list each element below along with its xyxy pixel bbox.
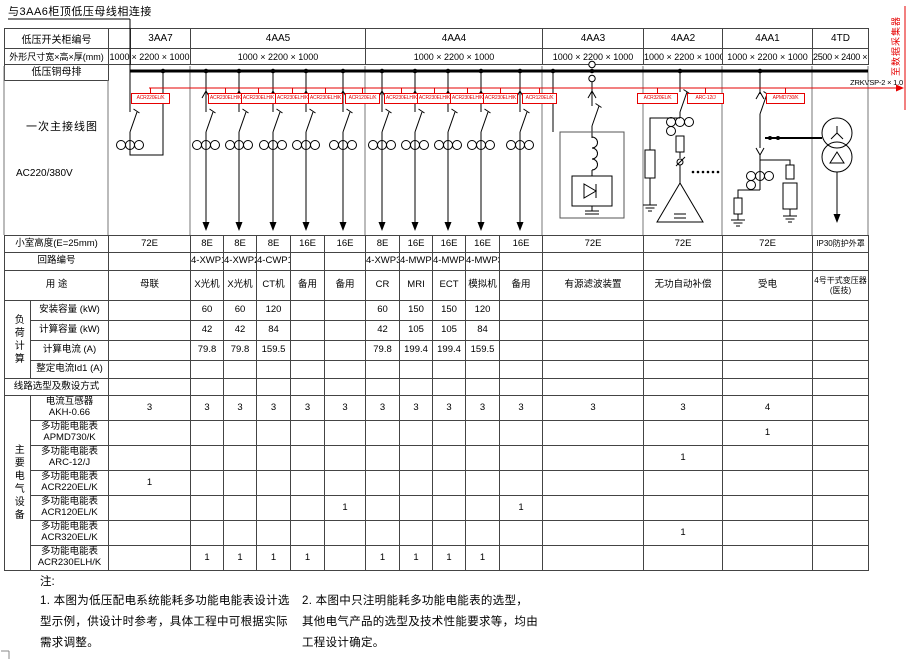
- cell-r3c8: 150: [433, 301, 466, 321]
- row-label: 多功能电能表 APMD730/K: [31, 421, 109, 446]
- cell-r3c10: [500, 301, 543, 321]
- cell-r11c10: [500, 471, 543, 496]
- cell-r12c13: [723, 496, 813, 521]
- cell-r7c10: [500, 379, 543, 396]
- cell-r12c8: [433, 496, 466, 521]
- cell-r11c13: [723, 471, 813, 496]
- cell-r1c10: [500, 253, 543, 271]
- cell-r0c1: 8E: [191, 236, 224, 253]
- row-label: 多功能电能表 ACR220EL/K: [31, 471, 109, 496]
- row-label: 多功能电能表 ACR230ELH/K: [31, 546, 109, 571]
- cell-r4c4: [291, 321, 325, 341]
- cell-r13c12: 1: [644, 521, 723, 546]
- cell-r5c10: [500, 341, 543, 361]
- cell-r4c0: [109, 321, 191, 341]
- cell-r9c2: [224, 421, 257, 446]
- cell-r4c13: [723, 321, 813, 341]
- cell-r1c6: 4-XWP3: [366, 253, 400, 271]
- cell-r3c13: [723, 301, 813, 321]
- cell-r2c14: 4号干式变压器 (医技): [813, 271, 869, 301]
- cell-r14c0: [109, 546, 191, 571]
- cell-r5c8: 199.4: [433, 341, 466, 361]
- cell-r11c14: [813, 471, 869, 496]
- cell-r9c14: [813, 421, 869, 446]
- cell-r14c12: [644, 546, 723, 571]
- cell-r4c1: 42: [191, 321, 224, 341]
- cell-r7c7: [400, 379, 433, 396]
- cabinet-size: 1000 × 2200 × 1000: [543, 49, 644, 65]
- cell-r9c7: [400, 421, 433, 446]
- cell-r9c10: [500, 421, 543, 446]
- cell-r3c0: [109, 301, 191, 321]
- cell-r13c7: [400, 521, 433, 546]
- cabinet-size: 2500 × 2400 × 1500: [813, 49, 869, 65]
- cell-r13c3: [257, 521, 291, 546]
- cell-r10c4: [291, 446, 325, 471]
- cell-r8c10: 3: [500, 396, 543, 421]
- cell-r8c11: 3: [543, 396, 644, 421]
- cell-r14c11: [543, 546, 644, 571]
- cell-r2c9: 模拟机: [466, 271, 500, 301]
- cell-r2c3: CT机: [257, 271, 291, 301]
- cell-r12c10: 1: [500, 496, 543, 521]
- note-2: 2. 本图中只注明能耗多功能电能表的选型，其他电气产品的选型及技术性能要求等，均…: [302, 591, 538, 654]
- cell-r0c12: 72E: [644, 236, 723, 253]
- comm-cable-label: ZRKVSP-2 × 1.0: [797, 78, 903, 87]
- cell-r7c0: [109, 379, 191, 396]
- cell-r1c2: 4-XWP2: [224, 253, 257, 271]
- cell-r1c3: 4-CWP1: [257, 253, 291, 271]
- meter-label-box: ACR320EL/K: [637, 93, 678, 104]
- meter-label-box: ACR230ELH/K: [275, 93, 310, 104]
- cell-r2c0: 母联: [109, 271, 191, 301]
- cell-r6c5: [325, 361, 366, 379]
- cell-r10c3: [257, 446, 291, 471]
- cell-r9c13: 1: [723, 421, 813, 446]
- row-label: 电流互感器 AKH-0.66: [31, 396, 109, 421]
- cell-r3c14: [813, 301, 869, 321]
- cell-r6c7: [400, 361, 433, 379]
- cell-r7c14: [813, 379, 869, 396]
- cell-r1c14: [813, 253, 869, 271]
- cell-r4c9: 84: [466, 321, 500, 341]
- cell-r11c3: [257, 471, 291, 496]
- cell-r12c2: [224, 496, 257, 521]
- cell-r7c13: [723, 379, 813, 396]
- meter-label-box: ARC-12/J: [687, 93, 724, 104]
- cell-r8c6: 3: [366, 396, 400, 421]
- connect-note: 与3AA6柜顶低压母线相连接: [8, 3, 152, 19]
- cell-r11c8: [433, 471, 466, 496]
- cell-r4c2: 42: [224, 321, 257, 341]
- cell-r1c9: 4-MWP3: [466, 253, 500, 271]
- note-1: 1. 本图为低压配电系统能耗多功能电能表设计选型示例，供设计时参考，具体工程中可…: [40, 591, 298, 654]
- cell-r0c2: 8E: [224, 236, 257, 253]
- header-spacer-cell: [109, 29, 131, 49]
- row-label: 用 途: [5, 271, 109, 301]
- cell-r12c9: [466, 496, 500, 521]
- cell-r9c0: [109, 421, 191, 446]
- cell-r4c14: [813, 321, 869, 341]
- cabinet-size: 1000 × 2200 × 1000: [723, 49, 813, 65]
- cell-r10c1: [191, 446, 224, 471]
- cell-r8c0: 3: [109, 396, 191, 421]
- cell-r2c7: MRI: [400, 271, 433, 301]
- cabinet-size: 1000 × 2200 × 1000: [191, 49, 366, 65]
- spec-table-body: 小室高度(E=25mm)72E8E8E8E16E16E8E16E16E16E16…: [5, 236, 869, 571]
- cell-r1c7: 4-MWP1: [400, 253, 433, 271]
- cell-r5c3: 159.5: [257, 341, 291, 361]
- cell-r4c10: [500, 321, 543, 341]
- cabinet-size: 1000 × 2200 × 1000: [366, 49, 543, 65]
- cell-r6c0: [109, 361, 191, 379]
- cell-r0c13: 72E: [723, 236, 813, 253]
- meter-label-box: ACR230ELH/K: [483, 93, 518, 104]
- cabinet-id: 4AA4: [366, 29, 543, 49]
- cell-r13c13: [723, 521, 813, 546]
- drawing-sheet: 与3AA6柜顶低压母线相连接 低压开关柜编号 3AA7 4AA5 4AA4 4A…: [0, 0, 924, 659]
- cell-r7c1: [191, 379, 224, 396]
- row-label: 安装容量 (kW): [31, 301, 109, 321]
- cell-r12c0: [109, 496, 191, 521]
- cell-r8c1: 3: [191, 396, 224, 421]
- cell-r7c11: [543, 379, 644, 396]
- cabinet-id: 4TD: [813, 29, 869, 49]
- bus-tie-symbol: [117, 69, 166, 155]
- row-label: 多功能电能表 ACR120EL/K: [31, 496, 109, 521]
- cabinet-size: × 2200 × 1000: [131, 49, 191, 65]
- cell-r5c12: [644, 341, 723, 361]
- cell-r14c6: 1: [366, 546, 400, 571]
- cabinet-id: 4AA1: [723, 29, 813, 49]
- cell-r2c12: 无功自动补偿: [644, 271, 723, 301]
- cell-r6c14: [813, 361, 869, 379]
- cell-r3c2: 60: [224, 301, 257, 321]
- cell-r2c6: CR: [366, 271, 400, 301]
- cell-r11c2: [224, 471, 257, 496]
- row-label: 计算电流 (A): [31, 341, 109, 361]
- cell-r10c5: [325, 446, 366, 471]
- group-label: 主要电气设备: [5, 396, 31, 571]
- cell-r3c12: [644, 301, 723, 321]
- cell-r4c3: 84: [257, 321, 291, 341]
- cell-r7c6: [366, 379, 400, 396]
- cell-r13c4: [291, 521, 325, 546]
- cell-r11c4: [291, 471, 325, 496]
- meter-label-box: ACR230ELH/K: [384, 93, 419, 104]
- cell-r1c5: [325, 253, 366, 271]
- cell-r5c0: [109, 341, 191, 361]
- cell-r0c6: 8E: [366, 236, 400, 253]
- cell-r10c12: 1: [644, 446, 723, 471]
- cell-r7c3: [257, 379, 291, 396]
- cell-r10c9: [466, 446, 500, 471]
- cell-r5c14: [813, 341, 869, 361]
- cell-r3c4: [291, 301, 325, 321]
- cell-r14c13: [723, 546, 813, 571]
- cell-r3c3: 120: [257, 301, 291, 321]
- cell-r2c1: X光机: [191, 271, 224, 301]
- cell-r10c2: [224, 446, 257, 471]
- cabinet-id: 4AA2: [644, 29, 723, 49]
- cell-r14c2: 1: [224, 546, 257, 571]
- cell-r10c6: [366, 446, 400, 471]
- cell-r6c4: [291, 361, 325, 379]
- cell-r2c5: 备用: [325, 271, 366, 301]
- cell-r6c12: [644, 361, 723, 379]
- cell-r7c9: [466, 379, 500, 396]
- cell-r9c5: [325, 421, 366, 446]
- cell-r7c4: [291, 379, 325, 396]
- header-row2-label: 外形尺寸宽×高×厚(mm): [5, 49, 109, 65]
- cell-r8c7: 3: [400, 396, 433, 421]
- cell-r13c1: [191, 521, 224, 546]
- notes-heading: 注:: [40, 573, 55, 589]
- cell-r13c9: [466, 521, 500, 546]
- cell-r13c10: [500, 521, 543, 546]
- busbar-row-label: 低压铜母排: [4, 65, 109, 81]
- row-label: 计算容量 (kW): [31, 321, 109, 341]
- transformer-symbol: [822, 118, 852, 223]
- cell-r5c1: 79.8: [191, 341, 224, 361]
- cell-r10c10: [500, 446, 543, 471]
- cell-r4c6: 42: [366, 321, 400, 341]
- cell-r5c6: 79.8: [366, 341, 400, 361]
- cell-r12c6: [366, 496, 400, 521]
- meter-label-box: ACR220EL/K: [131, 93, 170, 104]
- cabinet-id: 3AA7: [131, 29, 191, 49]
- cell-r13c14: [813, 521, 869, 546]
- cell-r10c0: [109, 446, 191, 471]
- meter-label-box: ACR120EL/K: [345, 93, 380, 104]
- cell-r2c4: 备用: [291, 271, 325, 301]
- cell-r8c9: 3: [466, 396, 500, 421]
- cell-r5c9: 159.5: [466, 341, 500, 361]
- diagram-title: 一次主接线图: [26, 118, 98, 134]
- meter-label-box: ACR230ELH/K: [417, 93, 452, 104]
- cell-r6c6: [366, 361, 400, 379]
- cell-r13c8: [433, 521, 466, 546]
- cell-r14c1: 1: [191, 546, 224, 571]
- cell-r11c7: [400, 471, 433, 496]
- cell-r14c8: 1: [433, 546, 466, 571]
- cell-r6c9: [466, 361, 500, 379]
- row-label: 线路选型及敷设方式: [5, 379, 109, 396]
- meter-label-box: ACR120EL/K: [522, 93, 557, 104]
- cell-r0c11: 72E: [543, 236, 644, 253]
- meter-label-box: ACR230ELH/K: [241, 93, 276, 104]
- cell-r12c12: [644, 496, 723, 521]
- cell-r0c14: IP30防护外罩: [813, 236, 869, 253]
- cell-r12c14: [813, 496, 869, 521]
- cell-r11c1: [191, 471, 224, 496]
- cell-r5c2: 79.8: [224, 341, 257, 361]
- cell-r3c6: 60: [366, 301, 400, 321]
- cell-r6c1: [191, 361, 224, 379]
- cell-r1c13: [723, 253, 813, 271]
- cell-r8c8: 3: [433, 396, 466, 421]
- cell-r9c8: [433, 421, 466, 446]
- cell-r5c13: [723, 341, 813, 361]
- cell-r1c4: [291, 253, 325, 271]
- cell-r8c5: 3: [325, 396, 366, 421]
- cell-r1c8: 4-MWP2: [433, 253, 466, 271]
- cell-r11c6: [366, 471, 400, 496]
- cell-r3c9: 120: [466, 301, 500, 321]
- cell-r4c12: [644, 321, 723, 341]
- cell-r8c13: 4: [723, 396, 813, 421]
- cell-r11c12: [644, 471, 723, 496]
- cell-r6c10: [500, 361, 543, 379]
- row-label: 多功能电能表 ACR320EL/K: [31, 521, 109, 546]
- cell-r9c12: [644, 421, 723, 446]
- cell-r7c12: [644, 379, 723, 396]
- cell-r2c10: 备用: [500, 271, 543, 301]
- spec-table: 小室高度(E=25mm)72E8E8E8E16E16E8E16E16E16E16…: [4, 235, 869, 571]
- cell-r14c9: 1: [466, 546, 500, 571]
- cell-r0c4: 16E: [291, 236, 325, 253]
- cell-r0c9: 16E: [466, 236, 500, 253]
- cell-r1c11: [543, 253, 644, 271]
- cabinet-id: 4AA3: [543, 29, 644, 49]
- group-label: 负荷计算: [5, 301, 31, 379]
- cell-r5c4: [291, 341, 325, 361]
- cell-r0c3: 8E: [257, 236, 291, 253]
- cell-r13c5: [325, 521, 366, 546]
- cabinet-size: 1000 × 2200 × 1000: [644, 49, 723, 65]
- cell-r3c1: 60: [191, 301, 224, 321]
- cell-r13c0: [109, 521, 191, 546]
- cell-r14c14: [813, 546, 869, 571]
- cell-r6c2: [224, 361, 257, 379]
- cell-r6c3: [257, 361, 291, 379]
- cell-r13c2: [224, 521, 257, 546]
- cell-r4c11: [543, 321, 644, 341]
- frame-corner: [1, 651, 9, 659]
- cell-r6c8: [433, 361, 466, 379]
- cell-r10c7: [400, 446, 433, 471]
- cell-r2c2: X光机: [224, 271, 257, 301]
- cell-r12c4: [291, 496, 325, 521]
- cell-r10c8: [433, 446, 466, 471]
- cell-r11c9: [466, 471, 500, 496]
- cell-r9c6: [366, 421, 400, 446]
- cell-r4c8: 105: [433, 321, 466, 341]
- cell-r8c3: 3: [257, 396, 291, 421]
- cell-r1c0: [109, 253, 191, 271]
- active-filter-symbol: [551, 61, 624, 218]
- cell-r4c7: 105: [400, 321, 433, 341]
- cell-r10c14: [813, 446, 869, 471]
- row-label: 整定电流Id1 (A): [31, 361, 109, 379]
- cell-r8c4: 3: [291, 396, 325, 421]
- cell-r0c8: 16E: [433, 236, 466, 253]
- cell-r14c10: [500, 546, 543, 571]
- cell-r2c11: 有源滤波装置: [543, 271, 644, 301]
- cell-r12c11: [543, 496, 644, 521]
- cell-r3c11: [543, 301, 644, 321]
- cell-r12c7: [400, 496, 433, 521]
- cell-r12c1: [191, 496, 224, 521]
- header-row1-label: 低压开关柜编号: [5, 29, 109, 49]
- cell-r7c2: [224, 379, 257, 396]
- cell-r5c5: [325, 341, 366, 361]
- cell-r1c1: 4-XWP1: [191, 253, 224, 271]
- row-label: 小室高度(E=25mm): [5, 236, 109, 253]
- meter-label-box: ACR230ELH/K: [308, 93, 343, 104]
- cell-r4c5: [325, 321, 366, 341]
- cell-r11c11: [543, 471, 644, 496]
- cell-r14c7: 1: [400, 546, 433, 571]
- header-table: 低压开关柜编号 3AA7 4AA5 4AA4 4AA3 4AA2 4AA1 4T…: [4, 28, 869, 65]
- cell-r5c7: 199.4: [400, 341, 433, 361]
- cell-r2c13: 受电: [723, 271, 813, 301]
- cell-r9c1: [191, 421, 224, 446]
- cell-r2c8: ECT: [433, 271, 466, 301]
- cell-r3c7: 150: [400, 301, 433, 321]
- cabinet-separators: [4, 66, 868, 235]
- cell-r0c5: 16E: [325, 236, 366, 253]
- cell-r1c12: [644, 253, 723, 271]
- cell-r11c5: [325, 471, 366, 496]
- meter-label-box: APMD730/K: [766, 93, 805, 104]
- cell-r10c13: [723, 446, 813, 471]
- cell-r9c9: [466, 421, 500, 446]
- cell-r8c12: 3: [644, 396, 723, 421]
- meter-label-box: ACR230ELH/K: [450, 93, 485, 104]
- cell-r6c11: [543, 361, 644, 379]
- cell-r9c3: [257, 421, 291, 446]
- cell-r13c11: [543, 521, 644, 546]
- cabinet-id: 4AA5: [191, 29, 366, 49]
- cell-r14c5: [325, 546, 366, 571]
- cell-r0c10: 16E: [500, 236, 543, 253]
- cell-r12c5: 1: [325, 496, 366, 521]
- cell-r0c7: 16E: [400, 236, 433, 253]
- cell-r10c11: [543, 446, 644, 471]
- cell-r6c13: [723, 361, 813, 379]
- voltage-label: AC220/380V: [16, 168, 73, 179]
- cell-r14c3: 1: [257, 546, 291, 571]
- cell-r0c0: 72E: [109, 236, 191, 253]
- cell-r5c11: [543, 341, 644, 361]
- cell-r12c3: [257, 496, 291, 521]
- cell-r14c4: 1: [291, 546, 325, 571]
- cell-r9c11: [543, 421, 644, 446]
- cell-r7c8: [433, 379, 466, 396]
- cell-r3c5: [325, 301, 366, 321]
- cell-r8c14: [813, 396, 869, 421]
- row-label: 回路编号: [5, 253, 109, 271]
- cell-r8c2: 3: [224, 396, 257, 421]
- cabinet-size-prefix: 1000: [109, 49, 131, 65]
- cell-r11c0: 1: [109, 471, 191, 496]
- meter-label-box: ACR230ELH/K: [208, 93, 243, 104]
- cell-r13c6: [366, 521, 400, 546]
- row-label: 多功能电能表 ARC-12/J: [31, 446, 109, 471]
- capacitor-bank-symbol: [643, 69, 719, 222]
- cell-r7c5: [325, 379, 366, 396]
- cell-r9c4: [291, 421, 325, 446]
